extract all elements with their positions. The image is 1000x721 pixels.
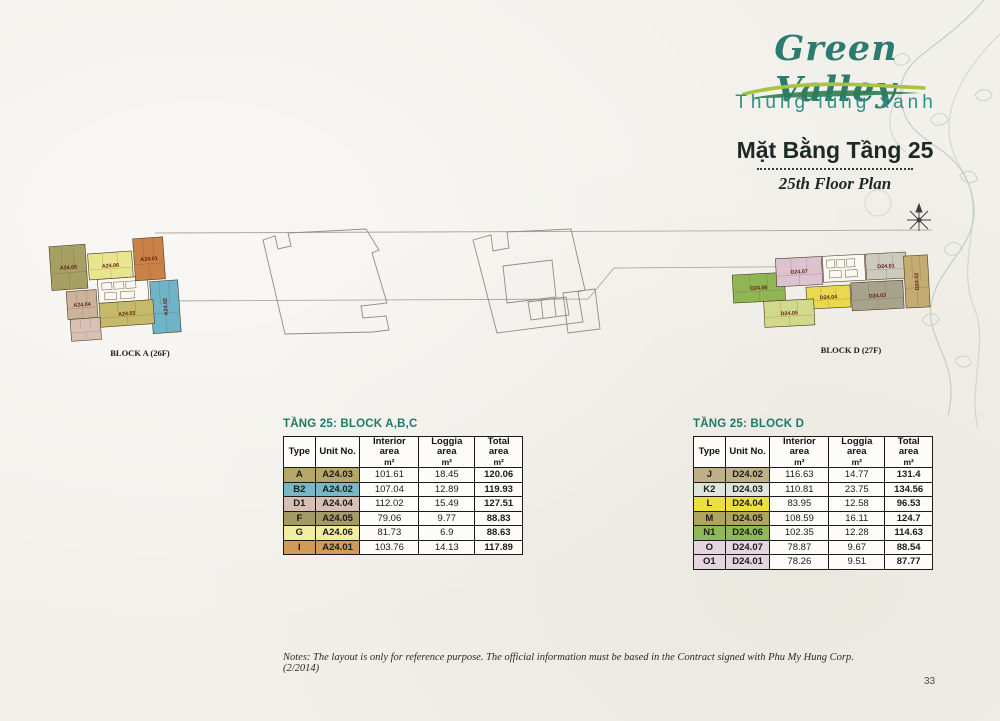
table-cell: O1 (694, 555, 726, 570)
table-cell: 9.51 (829, 555, 885, 570)
table-cell: 16.11 (829, 511, 885, 526)
plan-unit-label: A24.03 (118, 311, 136, 318)
table-cell: 101.61 (360, 468, 419, 483)
plan-unit-label: A24.06 (102, 263, 120, 270)
page-subtitle: 25th Floor Plan (700, 174, 970, 194)
table-cell: M (694, 511, 726, 526)
compass-icon (907, 204, 931, 231)
plan-unit-label: D24.07 (790, 269, 808, 276)
plan-unit-label: A24.02 (163, 298, 170, 316)
table-block-abc: TẦNG 25: BLOCK A,B,C TypeUnit No.Interio… (283, 418, 523, 555)
table-cell: K2 (694, 482, 726, 497)
table-cell: 108.59 (770, 511, 829, 526)
table-cell: 124.7 (885, 511, 933, 526)
column-header: Interior aream² (770, 437, 829, 468)
column-header: Loggia aream² (419, 437, 475, 468)
block-d-plan: D24.06D24.07D24.01D24.02D24.04D24.03D24.… (731, 251, 930, 329)
table-row: IA24.01103.7614.13117.89 (284, 540, 523, 555)
table-row: LD24.0483.9512.5896.53 (694, 497, 933, 512)
table-row: MD24.05108.5916.11124.7 (694, 511, 933, 526)
table-cell: 9.77 (419, 511, 475, 526)
page-title: Mặt Bằng Tầng 25 (700, 137, 970, 164)
table-cell: D24.07 (725, 540, 770, 555)
table-block-d: TẦNG 25: BLOCK D TypeUnit No.Interior ar… (693, 418, 933, 570)
table-cell: B2 (284, 482, 316, 497)
table-cell: 83.95 (770, 497, 829, 512)
table-row: D1A24.04112.0215.49127.51 (284, 497, 523, 512)
table-cell: N1 (694, 526, 726, 541)
table-cell: 110.81 (770, 482, 829, 497)
table-cell: D1 (284, 497, 316, 512)
table-cell: 23.75 (829, 482, 885, 497)
column-header: Unit No. (315, 437, 360, 468)
table-row: AA24.03101.6118.45120.06 (284, 468, 523, 483)
table-cell: 88.83 (475, 511, 523, 526)
column-header: Interior aream² (360, 437, 419, 468)
table-cell: 116.63 (770, 468, 829, 483)
brochure-page: Green Valley Thung lũng xanh Mặt Bằng Tầ… (0, 0, 1000, 721)
table-cell: 88.63 (475, 526, 523, 541)
table-cell: A24.02 (315, 482, 360, 497)
plan-unit-label: D24.03 (869, 293, 887, 300)
table-cell: 131.4 (885, 468, 933, 483)
table-cell: 6.9 (419, 526, 475, 541)
table-cell: 134.56 (885, 482, 933, 497)
table-cell: A24.05 (315, 511, 360, 526)
table-cell: D24.03 (725, 482, 770, 497)
table-cell: 14.77 (829, 468, 885, 483)
block-a-plan: A24.05A24.06A24.01A24.04A24.02A24.03 (49, 236, 182, 343)
block-d-core (822, 254, 865, 282)
table-cell: 102.35 (770, 526, 829, 541)
plan-unit-label: D24.01 (877, 263, 895, 270)
block-a-label: BLOCK A (26F) (110, 348, 170, 358)
table-row: JD24.02116.6314.77131.4 (694, 468, 933, 483)
table-row: O1D24.0178.269.5187.77 (694, 555, 933, 570)
table-cell: 78.26 (770, 555, 829, 570)
table-cell: F (284, 511, 316, 526)
table-cell: A24.04 (315, 497, 360, 512)
table-cell: 81.73 (360, 526, 419, 541)
table-row: OD24.0778.879.6788.54 (694, 540, 933, 555)
table-cell: 18.45 (419, 468, 475, 483)
table-cell: D24.06 (725, 526, 770, 541)
table-cell: 12.28 (829, 526, 885, 541)
table-cell: O (694, 540, 726, 555)
table-cell: 9.67 (829, 540, 885, 555)
table-cell: A (284, 468, 316, 483)
area-table-d: TypeUnit No.Interior aream²Loggia aream²… (693, 436, 933, 570)
column-header: Total aream² (885, 437, 933, 468)
table-cell: 96.53 (885, 497, 933, 512)
column-header: Unit No. (725, 437, 770, 468)
table-cell: 120.06 (475, 468, 523, 483)
column-header: Loggia aream² (829, 437, 885, 468)
table-cell: D24.01 (725, 555, 770, 570)
area-table-abc: TypeUnit No.Interior aream²Loggia aream²… (283, 436, 523, 555)
table-cell: D24.05 (725, 511, 770, 526)
table-cell: 12.58 (829, 497, 885, 512)
table-cell: 107.04 (360, 482, 419, 497)
table-row: FA24.0579.069.7788.83 (284, 511, 523, 526)
column-header: Type (284, 437, 316, 468)
page-number: 33 (924, 676, 935, 687)
plan-unit-label: A24.04 (73, 302, 91, 309)
table-row: K2D24.03110.8123.75134.56 (694, 482, 933, 497)
title-divider (757, 168, 913, 170)
block-d-label: BLOCK D (27F) (821, 345, 882, 355)
table-cell: G (284, 526, 316, 541)
footer-note: Notes: The layout is only for reference … (283, 652, 883, 674)
table-cell: 117.89 (475, 540, 523, 555)
column-header: Type (694, 437, 726, 468)
table-cell: J (694, 468, 726, 483)
block-b-outline (263, 229, 389, 334)
table-row: N1D24.06102.3512.28114.63 (694, 526, 933, 541)
plan-unit-label: D24.05 (780, 311, 798, 318)
table-cell: D24.04 (725, 497, 770, 512)
plan-unit-label: A24.05 (60, 265, 78, 272)
table-title-abc: TẦNG 25: BLOCK A,B,C (283, 418, 523, 430)
plan-unit-label: D24.06 (750, 285, 768, 292)
table-cell: 12.89 (419, 482, 475, 497)
table-row: B2A24.02107.0412.89119.93 (284, 482, 523, 497)
plan-unit (70, 317, 101, 341)
table-cell: A24.01 (315, 540, 360, 555)
table-cell: I (284, 540, 316, 555)
table-cell: 87.77 (885, 555, 933, 570)
logo-tagline: Thung lũng xanh (712, 92, 960, 114)
table-cell: 15.49 (419, 497, 475, 512)
table-cell: 103.76 (360, 540, 419, 555)
table-header-row: TypeUnit No.Interior aream²Loggia aream²… (284, 437, 523, 468)
block-c-outline (473, 229, 600, 333)
table-cell: 127.51 (475, 497, 523, 512)
table-cell: 112.02 (360, 497, 419, 512)
table-cell: 79.06 (360, 511, 419, 526)
table-cell: L (694, 497, 726, 512)
table-cell: D24.02 (725, 468, 770, 483)
plan-unit-label: D24.02 (914, 273, 921, 291)
table-cell: 14.13 (419, 540, 475, 555)
table-cell: 114.63 (885, 526, 933, 541)
table-header-row: TypeUnit No.Interior aream²Loggia aream²… (694, 437, 933, 468)
table-title-d: TẦNG 25: BLOCK D (693, 418, 933, 430)
table-row: GA24.0681.736.988.63 (284, 526, 523, 541)
plan-unit-label: D24.04 (820, 294, 838, 301)
table-cell: 119.93 (475, 482, 523, 497)
plan-unit-label: A24.01 (140, 256, 158, 263)
column-header: Total aream² (475, 437, 523, 468)
table-cell: A24.06 (315, 526, 360, 541)
table-cell: 78.87 (770, 540, 829, 555)
table-cell: 88.54 (885, 540, 933, 555)
floor-plan-canvas: A24.05A24.06A24.01A24.04A24.02A24.03 D24… (0, 195, 1000, 375)
table-cell: A24.03 (315, 468, 360, 483)
